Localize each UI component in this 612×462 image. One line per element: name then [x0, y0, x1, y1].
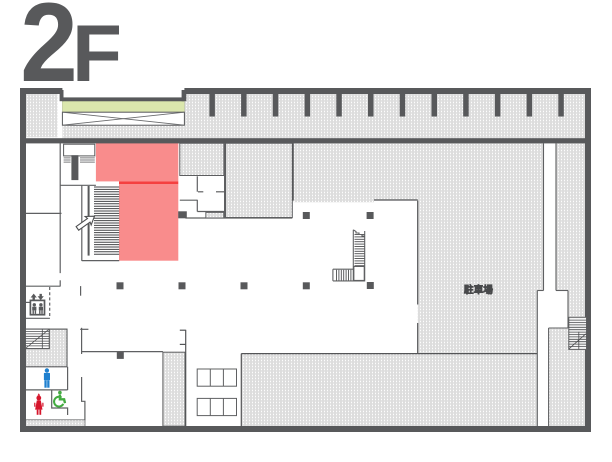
svg-text:F: F [72, 9, 122, 99]
svg-text:駐車場: 駐車場 [464, 284, 493, 296]
